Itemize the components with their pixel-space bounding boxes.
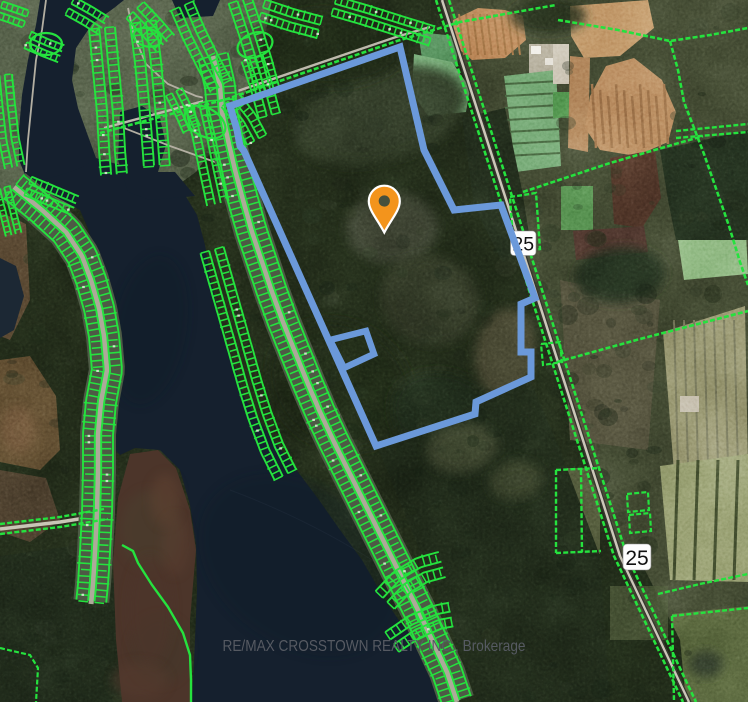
svg-text:RE/MAX CROSSTOWN REALTY INC.,: RE/MAX CROSSTOWN REALTY INC., Brokerage bbox=[223, 638, 526, 655]
svg-text:25: 25 bbox=[625, 547, 648, 570]
